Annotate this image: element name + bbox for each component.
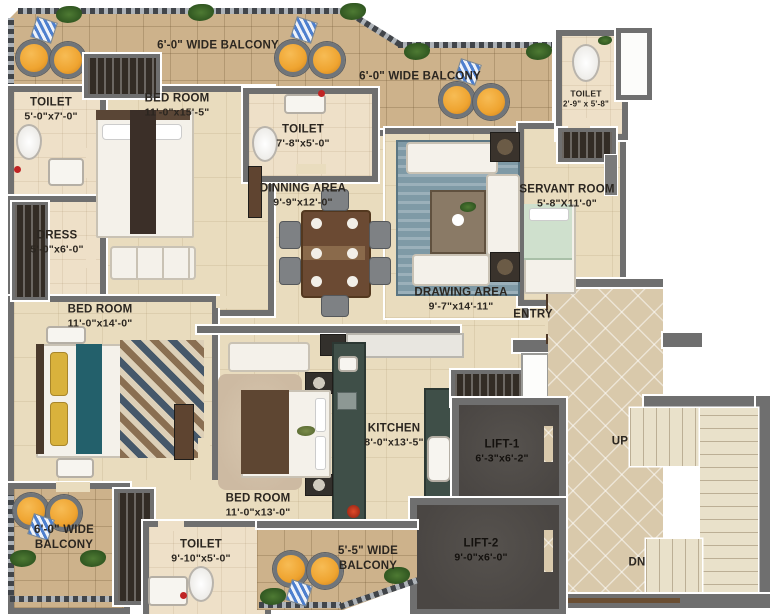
pouf-chair <box>16 40 52 76</box>
sink-icon <box>284 94 326 114</box>
pouf-chair <box>309 42 345 78</box>
balcony-label: BALCONY <box>338 559 398 574</box>
sofa-drawing-top <box>406 142 498 174</box>
label-toilet-mid: TOILET7'-8"x5'-0" <box>276 123 329 152</box>
bed-bedroom-bottom <box>241 390 331 478</box>
label-drawing: DRAWING AREA9'-7"x14'-11" <box>414 286 507 315</box>
label-toilet-top-right: TOILET2'-9" x 5'-8" <box>563 88 609 109</box>
label-toilet-bottom: TOILET9'-10"x5'-0" <box>171 538 230 567</box>
label-balcony-top-left: 6'-0" WIDE BALCONY <box>157 39 279 54</box>
label-servant: SERVANT ROOM5'-8"X11'-0" <box>519 183 614 212</box>
balcony-label: BALCONY <box>34 538 94 553</box>
label-balcony-bottom-left: 6'-0" WIDEBALCONY <box>34 523 94 553</box>
room-name: TOILET <box>30 97 72 109</box>
room-name: DINNING AREA <box>260 183 346 195</box>
vase-icon <box>452 214 464 226</box>
room-name: LIFT-1 <box>484 439 519 451</box>
door-opening <box>158 521 184 531</box>
label-dress: DRESS5'-0"x6'-0" <box>30 229 83 258</box>
label-stairs-dn: DN <box>628 556 645 571</box>
kitchen-appliance <box>338 356 358 372</box>
entry-door-panel <box>521 353 549 403</box>
door-opening <box>86 148 96 178</box>
room-name: BED ROOM <box>68 304 133 316</box>
pillow <box>315 436 326 470</box>
room-dims: 11'-0"x13'-0" <box>226 507 291 521</box>
room-dims: 5'-0"x7'-0" <box>24 111 77 125</box>
sofa-drawing-right <box>486 174 520 256</box>
headboard <box>36 344 44 454</box>
door-opening <box>216 296 248 308</box>
room-name: ENTRY <box>513 309 553 321</box>
label-dinning: DINNING AREA9'-9"x12'-0" <box>260 182 346 211</box>
dresser <box>174 404 194 460</box>
kitchen-appliance <box>337 392 357 410</box>
railing-bottom-left-lower <box>10 596 114 602</box>
vanity-icon <box>148 576 188 606</box>
pillow <box>50 402 68 446</box>
pouf-chair <box>50 42 86 78</box>
plate <box>311 276 322 287</box>
lobby-threshold <box>554 598 680 603</box>
kitchen-sink-icon <box>427 436 451 482</box>
plate <box>347 248 358 259</box>
room-dims: 9'-0"x6'-0" <box>454 552 507 566</box>
railing-left <box>8 18 14 88</box>
room-dims: 5'-0"x6'-0" <box>30 244 83 258</box>
room-dims: 9'-7"x14'-11" <box>414 301 507 315</box>
label-lift2: LIFT-29'-0"x6'-0" <box>454 537 507 566</box>
pouf-chair <box>439 82 475 118</box>
room-name: TOILET <box>180 539 222 551</box>
balcony-label: 5'-5" WIDE <box>338 544 398 559</box>
room-name: KITCHEN <box>368 423 421 435</box>
room-dims: 11'-0"x14'-0" <box>68 318 133 332</box>
stairs-landing <box>700 408 758 598</box>
door-opening <box>56 482 90 492</box>
side-table <box>490 132 520 162</box>
room-name: DRAWING AREA <box>414 287 507 299</box>
room-name: DRESS <box>37 230 78 242</box>
stair-right-wall <box>756 396 770 597</box>
dining-chair <box>279 221 301 249</box>
door-opening <box>86 240 96 268</box>
label-toilet-top-left: TOILET5'-0"x7'-0" <box>24 96 77 125</box>
bed-runner <box>76 344 102 454</box>
room-dims: 2'-9" x 5'-8" <box>563 99 609 109</box>
stairs-label: UP <box>612 436 628 448</box>
door-opening <box>198 438 210 472</box>
duct-shaft <box>616 28 652 100</box>
bed-runner <box>130 110 156 234</box>
room-name: BED ROOM <box>226 493 291 505</box>
pillow <box>50 352 68 396</box>
room-name: TOILET <box>282 124 324 136</box>
plate <box>311 218 322 229</box>
lift-1-door-opening <box>544 426 553 462</box>
sofa-bedroom-top <box>110 246 196 280</box>
blanket <box>241 390 289 474</box>
flower-icon <box>180 592 187 599</box>
side-table <box>490 252 520 282</box>
sofa-drawing-bottom <box>412 254 490 286</box>
room-dims: 7'-8"x5'-0" <box>276 138 329 152</box>
label-bedroom-top: BED ROOM11'-0"x15'-5" <box>145 92 210 121</box>
room-dims: 8'-0"x13'-5" <box>364 437 423 451</box>
stairs-down-flight <box>646 539 702 597</box>
plate <box>347 218 358 229</box>
pouf-chair <box>473 84 509 120</box>
room-name: SERVANT ROOM <box>519 184 614 196</box>
leaf-decor <box>297 426 315 436</box>
room-dims: 9'-9"x12'-0" <box>260 197 346 211</box>
pillow <box>315 398 326 432</box>
balcony-label: 6'-0" WIDE BALCONY <box>359 71 481 83</box>
room-dims: 5'-8"X11'-0" <box>519 198 614 212</box>
dining-chair <box>369 221 391 249</box>
room-dims: 6'-3"x6'-2" <box>475 453 528 467</box>
label-bedroom-bottom: BED ROOM11'-0"x13'-0" <box>226 492 291 521</box>
pouf-chair <box>275 40 311 76</box>
dining-chair <box>279 257 301 285</box>
label-balcony-top-right: 6'-0" WIDE BALCONY <box>359 70 481 85</box>
flower-icon <box>14 166 21 173</box>
balcony-label: 6'-0" WIDE BALCONY <box>157 40 279 52</box>
plate <box>347 276 358 287</box>
balcony-label: 6'-0" WIDE <box>34 523 94 538</box>
room-dims: 9'-10"x5'-0" <box>171 553 230 567</box>
cooking-pot-icon <box>347 505 360 518</box>
dining-chair <box>369 257 391 285</box>
floor-plan: 6'-0" WIDE BALCONY 6'-0" WIDE BALCONY TO… <box>0 0 770 614</box>
stair-wall-stub <box>663 333 702 347</box>
bed-bedroom-top <box>96 110 194 238</box>
label-entry: ENTRY <box>513 308 553 323</box>
kitchen-wall <box>197 326 460 333</box>
flower-icon <box>318 90 325 97</box>
nightstand <box>56 458 94 478</box>
room-name: BED ROOM <box>145 93 210 105</box>
stairs-label: DN <box>628 557 645 569</box>
door-opening <box>296 164 326 174</box>
plate <box>311 248 322 259</box>
label-kitchen: KITCHEN8'-0"x13'-5" <box>364 422 423 451</box>
room-name: TOILET <box>570 88 601 98</box>
label-stairs-up: UP <box>612 435 628 450</box>
coffee-table <box>430 190 486 254</box>
label-lift1: LIFT-16'-3"x6'-2" <box>475 438 528 467</box>
dining-chair <box>321 295 349 317</box>
sink-icon <box>48 158 84 186</box>
label-bedroom-left: BED ROOM11'-0"x14'-0" <box>68 303 133 332</box>
room-name: LIFT-2 <box>463 538 498 550</box>
label-balcony-bottom: 5'-5" WIDEBALCONY <box>338 544 398 574</box>
stair-top-wall <box>644 396 770 408</box>
sofa-bedroom-bottom <box>228 342 310 372</box>
flower-vase-leaves <box>460 202 476 212</box>
door-opening <box>568 118 590 128</box>
balcony-bottom-top-wall <box>257 521 417 528</box>
room-dims: 11'-0"x15'-5" <box>145 107 210 121</box>
lift-2-door-opening <box>544 530 553 572</box>
dining-table <box>301 210 371 298</box>
bed-servant <box>524 204 576 294</box>
